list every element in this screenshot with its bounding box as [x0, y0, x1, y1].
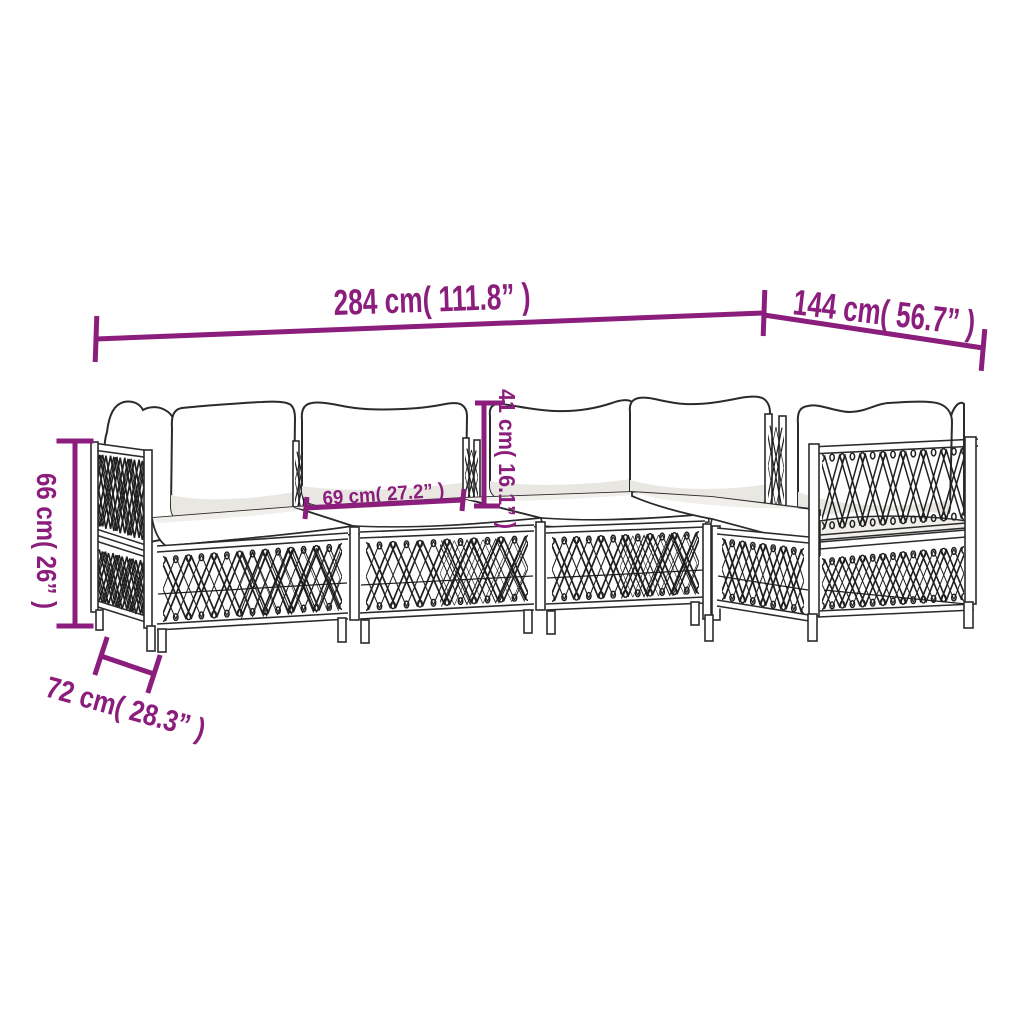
svg-text:66 cm( 26” ): 66 cm( 26” )	[31, 473, 62, 609]
svg-text:41 cm( 16.1” ): 41 cm( 16.1” )	[494, 389, 520, 529]
svg-text:284 cm( 111.8” ): 284 cm( 111.8” )	[333, 275, 531, 323]
